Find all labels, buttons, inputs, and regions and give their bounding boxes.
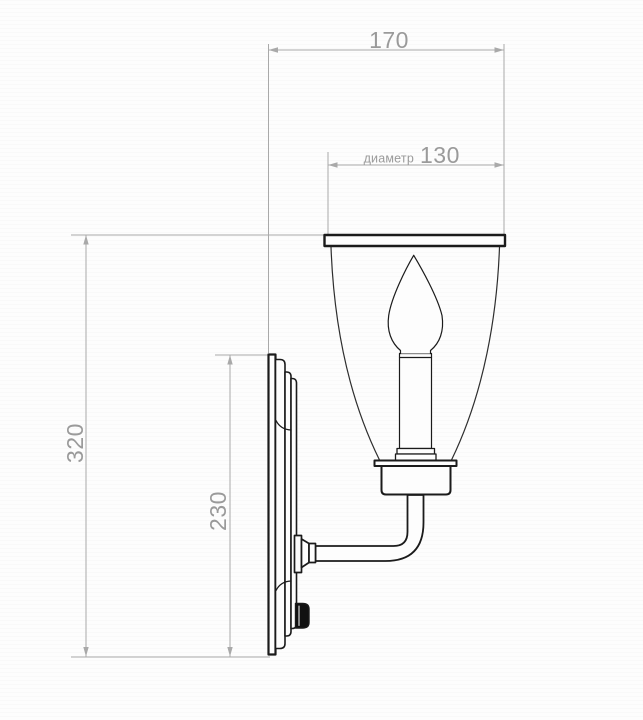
sconce-fixture bbox=[269, 235, 506, 655]
dimension-value-backplate-height: 230 bbox=[205, 491, 231, 531]
dimension-diameter: диаметр 130 bbox=[328, 142, 504, 234]
switch bbox=[296, 604, 310, 629]
dimension-value-total-depth: 170 bbox=[369, 27, 409, 53]
connector-base-ring bbox=[295, 536, 302, 573]
arrow-down-icon bbox=[227, 647, 232, 657]
arrow-down-icon bbox=[83, 647, 88, 657]
sconce-technical-drawing: 170 диаметр 130 320 bbox=[0, 0, 643, 720]
holder-cup bbox=[382, 466, 451, 495]
backplate-disc-1 bbox=[269, 355, 276, 655]
backplate-disc-2 bbox=[276, 360, 286, 649]
glass-wall-left bbox=[331, 247, 380, 460]
arrow-right-icon bbox=[495, 47, 505, 52]
socket-rings bbox=[396, 449, 437, 461]
arrow-right-icon bbox=[495, 162, 505, 167]
arm-connector bbox=[295, 536, 316, 573]
dimension-label-diameter: диаметр bbox=[364, 152, 414, 166]
switch-knob bbox=[296, 604, 310, 629]
backplate bbox=[269, 355, 297, 655]
arrow-up-icon bbox=[83, 235, 88, 245]
connector-cone bbox=[302, 539, 310, 568]
dimension-value-diameter: 130 bbox=[420, 142, 460, 168]
support-arm bbox=[316, 495, 424, 561]
glass-wall-right bbox=[452, 247, 500, 460]
backplate-disc-4 bbox=[291, 379, 297, 629]
glass-rim bbox=[325, 235, 506, 246]
candle-bulb bbox=[388, 255, 442, 448]
shade-holder bbox=[375, 461, 457, 495]
dimension-value-total-height: 320 bbox=[62, 423, 88, 463]
arrow-left-icon bbox=[269, 47, 279, 52]
socket-ring-upper bbox=[397, 449, 435, 455]
candle-tube bbox=[400, 354, 432, 449]
dimension-backplate-height: 230 bbox=[205, 355, 268, 657]
holder-flange bbox=[375, 461, 457, 467]
dimension-total-depth: 170 bbox=[269, 27, 505, 353]
connector-neck-ring bbox=[309, 544, 316, 563]
arrow-left-icon bbox=[328, 162, 338, 167]
arrow-up-icon bbox=[227, 355, 232, 365]
backplate-disc-3 bbox=[285, 372, 291, 636]
bulb-flame-glass bbox=[388, 255, 442, 353]
